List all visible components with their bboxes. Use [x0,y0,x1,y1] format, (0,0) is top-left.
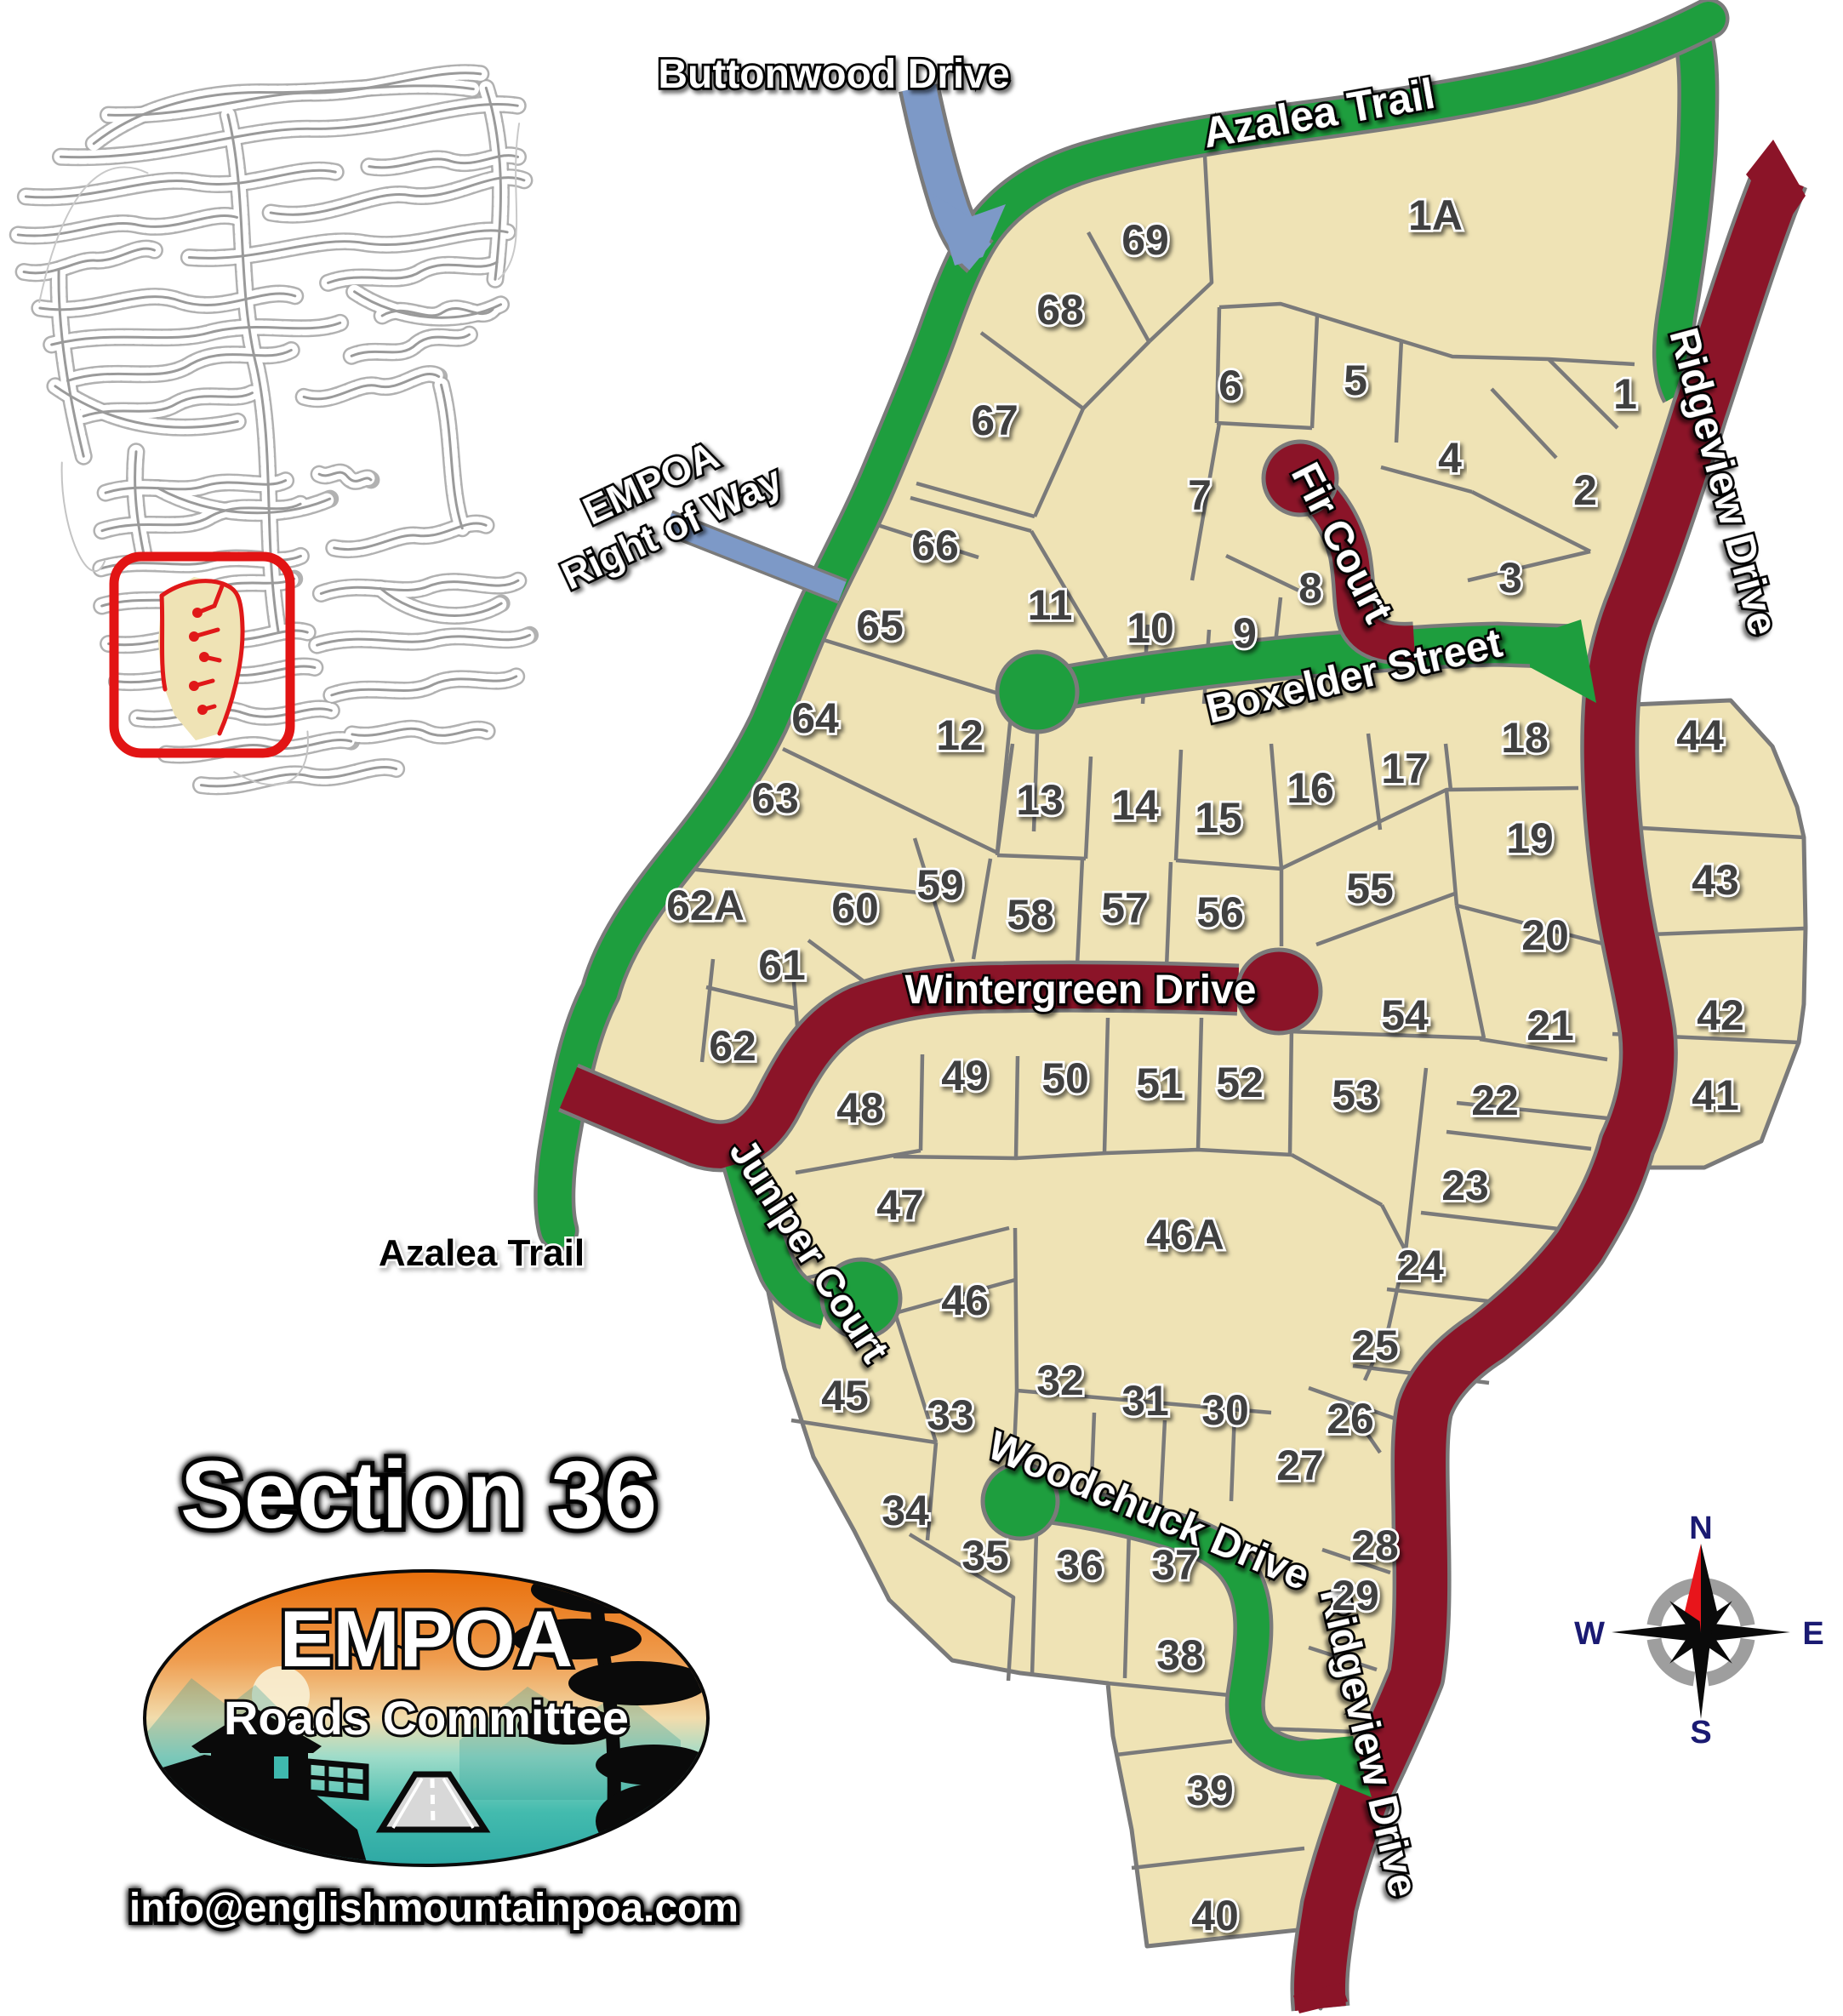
svg-text:5: 5 [1344,357,1367,404]
svg-text:19: 19 [1506,814,1554,862]
svg-text:23: 23 [1441,1162,1489,1209]
svg-text:46A: 46A [1146,1211,1224,1259]
svg-text:48: 48 [836,1084,884,1132]
svg-text:46: 46 [941,1276,989,1324]
svg-text:59: 59 [916,861,964,909]
svg-text:info@englishmountainpoa.com: info@englishmountainpoa.com [129,1886,739,1931]
svg-text:67: 67 [971,397,1018,444]
svg-text:47: 47 [876,1181,924,1229]
svg-text:37: 37 [1151,1541,1199,1589]
svg-text:65: 65 [856,602,904,649]
svg-text:8: 8 [1298,564,1322,612]
svg-text:25: 25 [1351,1322,1399,1369]
svg-text:20: 20 [1521,911,1569,959]
svg-text:24: 24 [1396,1242,1444,1289]
svg-text:51: 51 [1136,1059,1184,1107]
svg-text:Buttonwood Drive: Buttonwood Drive [658,52,1009,97]
svg-text:45: 45 [821,1372,869,1419]
svg-text:EMPOA: EMPOA [280,1594,573,1683]
svg-text:13: 13 [1016,776,1064,824]
svg-text:33: 33 [927,1391,974,1439]
svg-text:38: 38 [1156,1631,1204,1679]
svg-text:14: 14 [1111,781,1159,829]
svg-text:7: 7 [1188,471,1212,519]
svg-text:32: 32 [1036,1356,1084,1404]
svg-text:34: 34 [882,1487,929,1534]
svg-text:60: 60 [831,884,879,932]
svg-text:31: 31 [1121,1377,1169,1425]
svg-text:62A: 62A [666,882,745,929]
svg-text:61: 61 [758,941,806,989]
svg-text:36: 36 [1056,1541,1104,1589]
svg-text:52: 52 [1216,1059,1264,1106]
svg-text:26: 26 [1327,1395,1374,1442]
svg-text:29: 29 [1332,1572,1379,1619]
svg-text:E: E [1802,1616,1823,1652]
svg-text:69: 69 [1121,216,1169,264]
svg-text:41: 41 [1692,1071,1739,1119]
svg-text:Section 36: Section 36 [180,1442,657,1548]
svg-text:17: 17 [1381,745,1429,792]
svg-text:9: 9 [1233,609,1257,657]
svg-text:12: 12 [936,711,984,759]
svg-text:42: 42 [1697,991,1744,1039]
svg-text:55: 55 [1346,865,1394,912]
svg-text:56: 56 [1196,888,1244,936]
svg-text:W: W [1574,1616,1605,1652]
svg-text:53: 53 [1332,1071,1379,1119]
svg-text:50: 50 [1041,1054,1089,1102]
svg-text:40: 40 [1191,1892,1239,1939]
svg-text:68: 68 [1036,286,1084,334]
svg-text:1: 1 [1613,370,1637,418]
svg-text:22: 22 [1471,1077,1519,1124]
svg-text:10: 10 [1127,604,1174,652]
svg-text:57: 57 [1101,884,1149,932]
svg-text:18: 18 [1501,714,1549,762]
svg-text:54: 54 [1381,991,1429,1039]
svg-text:11: 11 [1028,581,1073,629]
svg-text:62: 62 [709,1022,756,1070]
svg-text:Azalea Trail: Azalea Trail [379,1232,585,1274]
svg-text:64: 64 [791,694,839,742]
svg-text:27: 27 [1276,1442,1324,1489]
svg-text:49: 49 [941,1052,989,1099]
svg-text:21: 21 [1526,1002,1574,1049]
svg-text:28: 28 [1351,1522,1399,1569]
svg-text:66: 66 [911,522,959,569]
svg-text:1A: 1A [1408,191,1463,239]
svg-text:6: 6 [1218,362,1242,409]
svg-text:3: 3 [1498,554,1522,602]
svg-text:Wintergreen Drive: Wintergreen Drive [904,968,1256,1013]
svg-text:43: 43 [1692,856,1739,904]
svg-text:35: 35 [961,1532,1009,1579]
svg-text:S: S [1690,1715,1711,1750]
svg-text:39: 39 [1186,1767,1234,1814]
svg-text:N: N [1689,1511,1712,1546]
svg-text:58: 58 [1007,891,1054,939]
svg-text:4: 4 [1438,434,1462,482]
svg-text:15: 15 [1195,794,1242,842]
svg-text:2: 2 [1573,466,1597,514]
svg-text:63: 63 [751,774,799,822]
svg-text:44: 44 [1676,711,1724,759]
svg-text:16: 16 [1287,764,1334,812]
svg-text:30: 30 [1201,1386,1249,1434]
svg-text:Roads Committee: Roads Committee [224,1691,629,1745]
